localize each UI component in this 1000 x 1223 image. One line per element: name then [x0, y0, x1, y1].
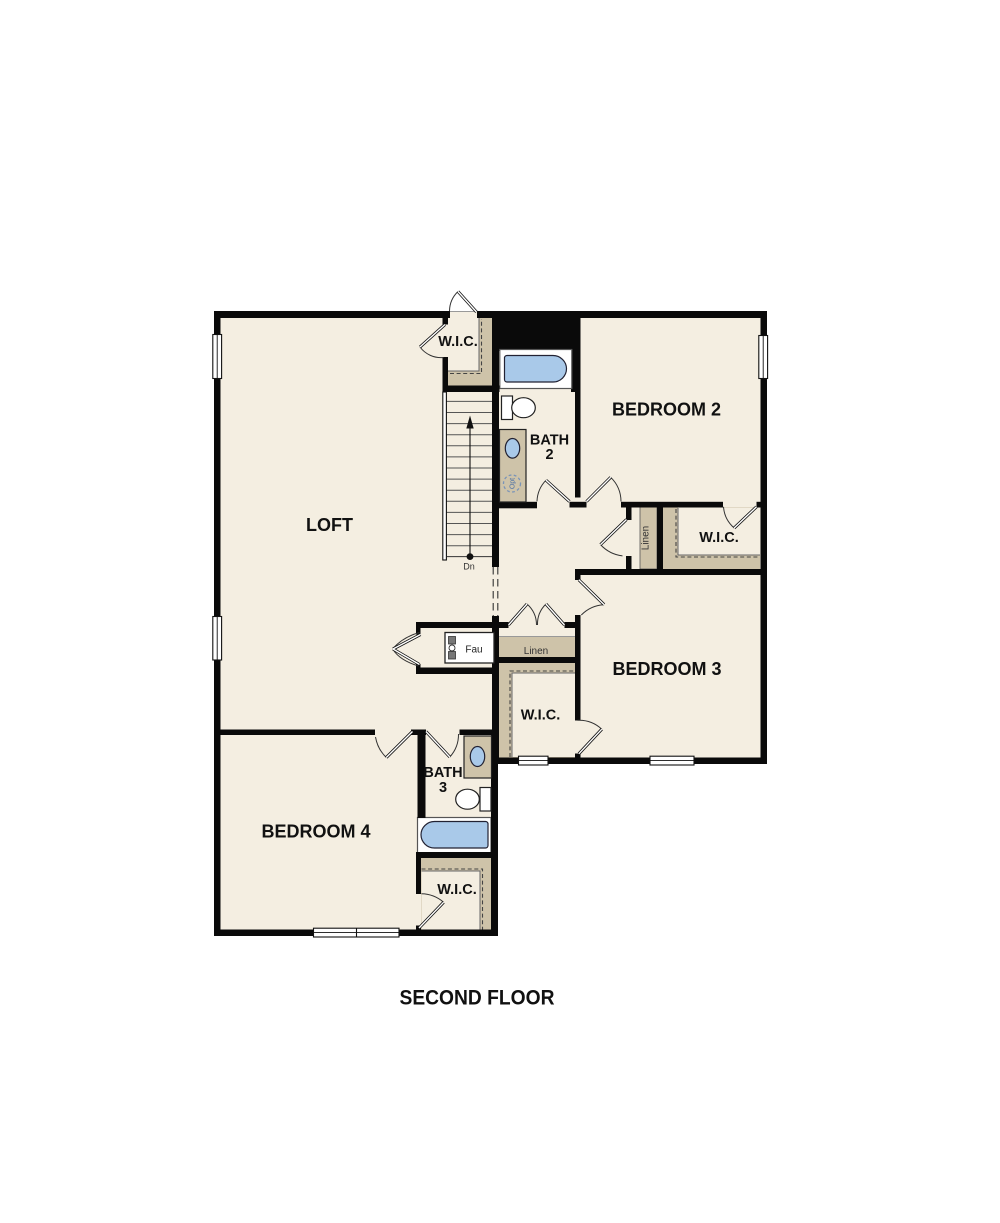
svg-text:BEDROOM 4: BEDROOM 4: [261, 822, 370, 842]
svg-text:BEDROOM 3: BEDROOM 3: [612, 659, 721, 679]
svg-text:Linen: Linen: [641, 526, 652, 550]
svg-text:LOFT: LOFT: [306, 515, 353, 535]
svg-text:BEDROOM 2: BEDROOM 2: [612, 400, 721, 420]
svg-text:W.I.C.: W.I.C.: [438, 334, 477, 350]
svg-text:2: 2: [545, 447, 553, 463]
svg-text:Opt: Opt: [510, 478, 517, 489]
svg-text:W.I.C.: W.I.C.: [437, 882, 476, 898]
svg-text:W.I.C.: W.I.C.: [521, 708, 560, 724]
svg-text:BATH: BATH: [530, 432, 569, 448]
svg-text:BATH: BATH: [423, 765, 462, 781]
svg-text:Linen: Linen: [524, 646, 548, 657]
svg-text:SECOND FLOOR: SECOND FLOOR: [400, 987, 555, 1010]
svg-text:Dn: Dn: [463, 562, 475, 572]
svg-text:Fau: Fau: [465, 645, 482, 656]
svg-text:3: 3: [439, 780, 447, 796]
svg-text:W.I.C.: W.I.C.: [699, 530, 738, 546]
